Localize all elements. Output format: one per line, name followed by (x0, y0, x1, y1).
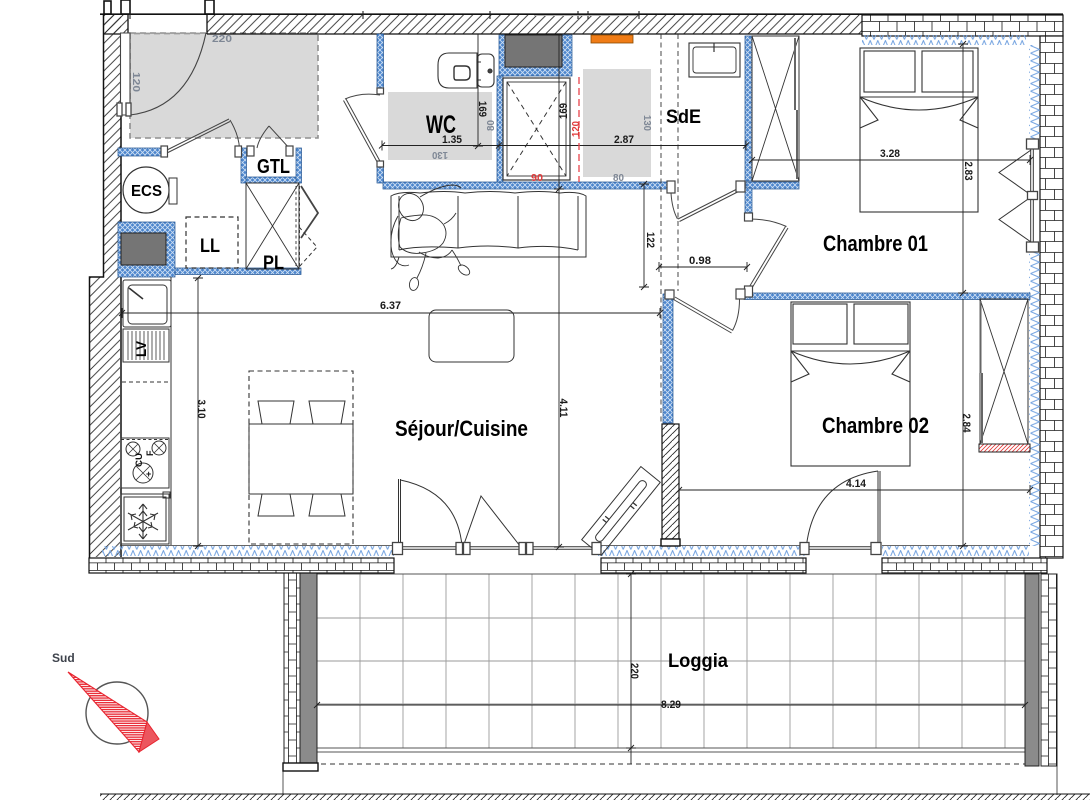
svg-text:ECS: ECS (131, 183, 162, 200)
svg-text:0.98: 0.98 (689, 255, 711, 267)
svg-text:4.14: 4.14 (846, 478, 867, 490)
svg-text:SdE: SdE (666, 107, 701, 128)
svg-text:Séjour/Cuisine: Séjour/Cuisine (395, 416, 528, 441)
svg-text:80: 80 (486, 120, 497, 131)
svg-text:Chambre 01: Chambre 01 (823, 231, 928, 256)
svg-text:220: 220 (628, 663, 640, 679)
svg-text:90: 90 (531, 173, 543, 184)
svg-text:LV: LV (133, 340, 149, 357)
svg-text:130: 130 (432, 149, 448, 160)
svg-text:122: 122 (644, 232, 656, 248)
svg-text:LL: LL (200, 236, 220, 257)
svg-text:+: + (146, 469, 151, 479)
svg-text:2.84: 2.84 (960, 414, 972, 434)
svg-text:2.87: 2.87 (614, 134, 634, 146)
svg-text:Loggia: Loggia (668, 651, 728, 672)
svg-text:120: 120 (571, 121, 582, 137)
svg-text:3.10: 3.10 (195, 400, 207, 419)
svg-text:F: F (145, 450, 155, 456)
svg-text:120: 120 (130, 72, 141, 93)
svg-text:169: 169 (476, 101, 488, 117)
svg-text:CU: CU (134, 453, 144, 467)
svg-text:1.35: 1.35 (442, 134, 462, 146)
svg-text:6.37: 6.37 (380, 300, 401, 312)
svg-text:80: 80 (613, 173, 624, 184)
svg-text:3.28: 3.28 (880, 148, 900, 160)
svg-text:2.83: 2.83 (962, 162, 974, 181)
svg-text:GTL: GTL (257, 156, 290, 178)
svg-text:169: 169 (558, 103, 570, 119)
svg-text:Chambre 02: Chambre 02 (822, 413, 929, 438)
svg-text:220: 220 (212, 34, 233, 45)
svg-text:Sud: Sud (52, 651, 75, 665)
svg-text:PL: PL (263, 253, 284, 274)
svg-text:4.11: 4.11 (557, 399, 569, 418)
svg-text:130: 130 (641, 115, 652, 131)
svg-text:8.29: 8.29 (661, 699, 681, 711)
